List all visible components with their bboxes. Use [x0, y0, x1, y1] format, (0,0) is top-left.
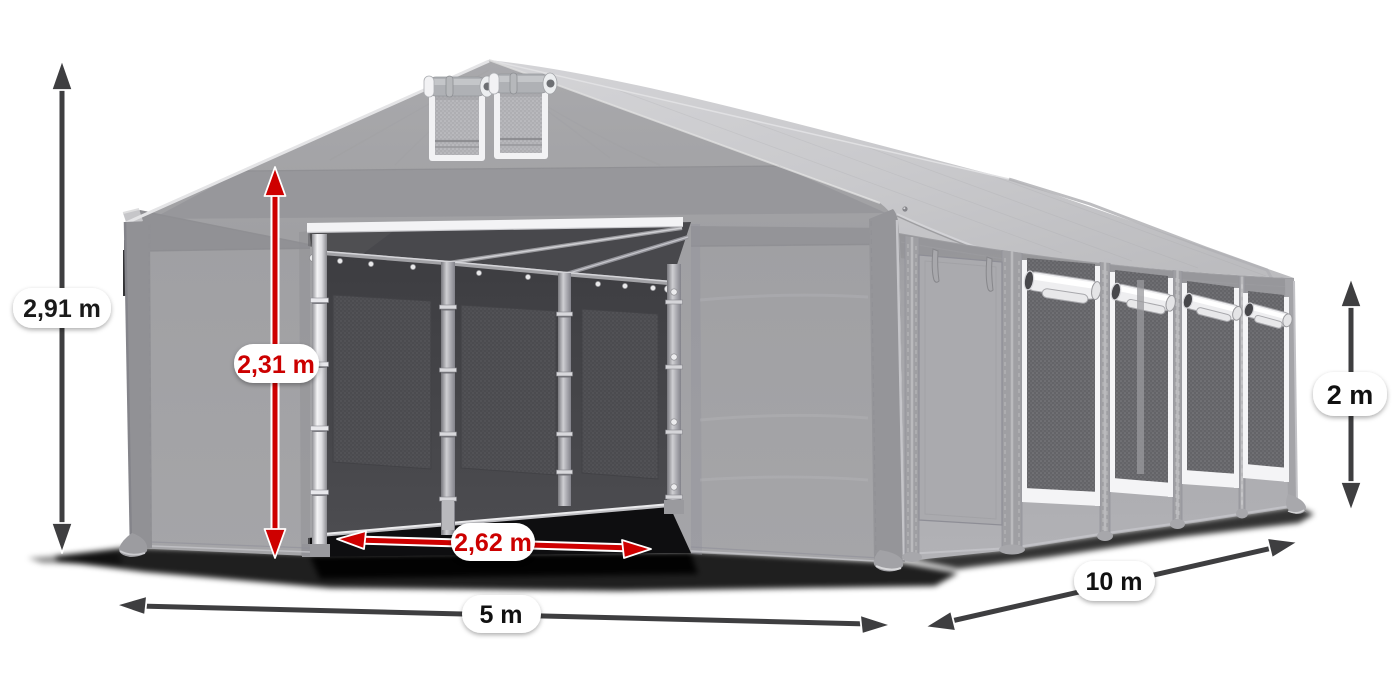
svg-text:2,91 m: 2,91 m	[23, 295, 101, 323]
svg-text:2,62 m: 2,62 m	[454, 529, 532, 557]
svg-text:2 m: 2 m	[1327, 380, 1374, 410]
svg-text:2,31 m: 2,31 m	[237, 351, 315, 379]
svg-text:10 m: 10 m	[1086, 568, 1143, 596]
svg-text:5 m: 5 m	[479, 601, 522, 629]
